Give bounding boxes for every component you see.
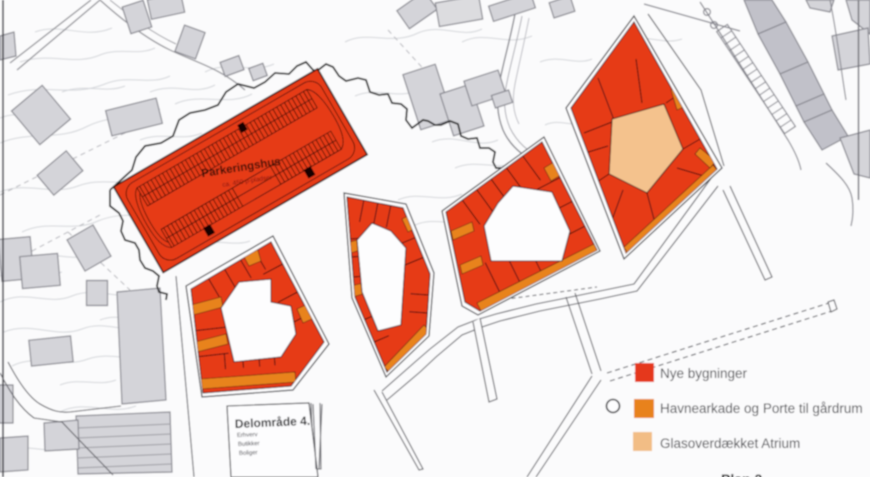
svg-text:Erhverv: Erhverv — [237, 432, 258, 439]
svg-text:Nye bygninger: Nye bygninger — [660, 366, 748, 381]
svg-text:Plan 2: Plan 2 — [721, 471, 762, 477]
svg-text:Butikker: Butikker — [238, 441, 260, 448]
svg-text:Havnearkade og Porte til gårdr: Havnearkade og Porte til gårdrum — [660, 401, 863, 416]
svg-text:Glasoverdækket Atrium: Glasoverdækket Atrium — [660, 436, 800, 451]
svg-text:Boliger: Boliger — [239, 450, 258, 457]
